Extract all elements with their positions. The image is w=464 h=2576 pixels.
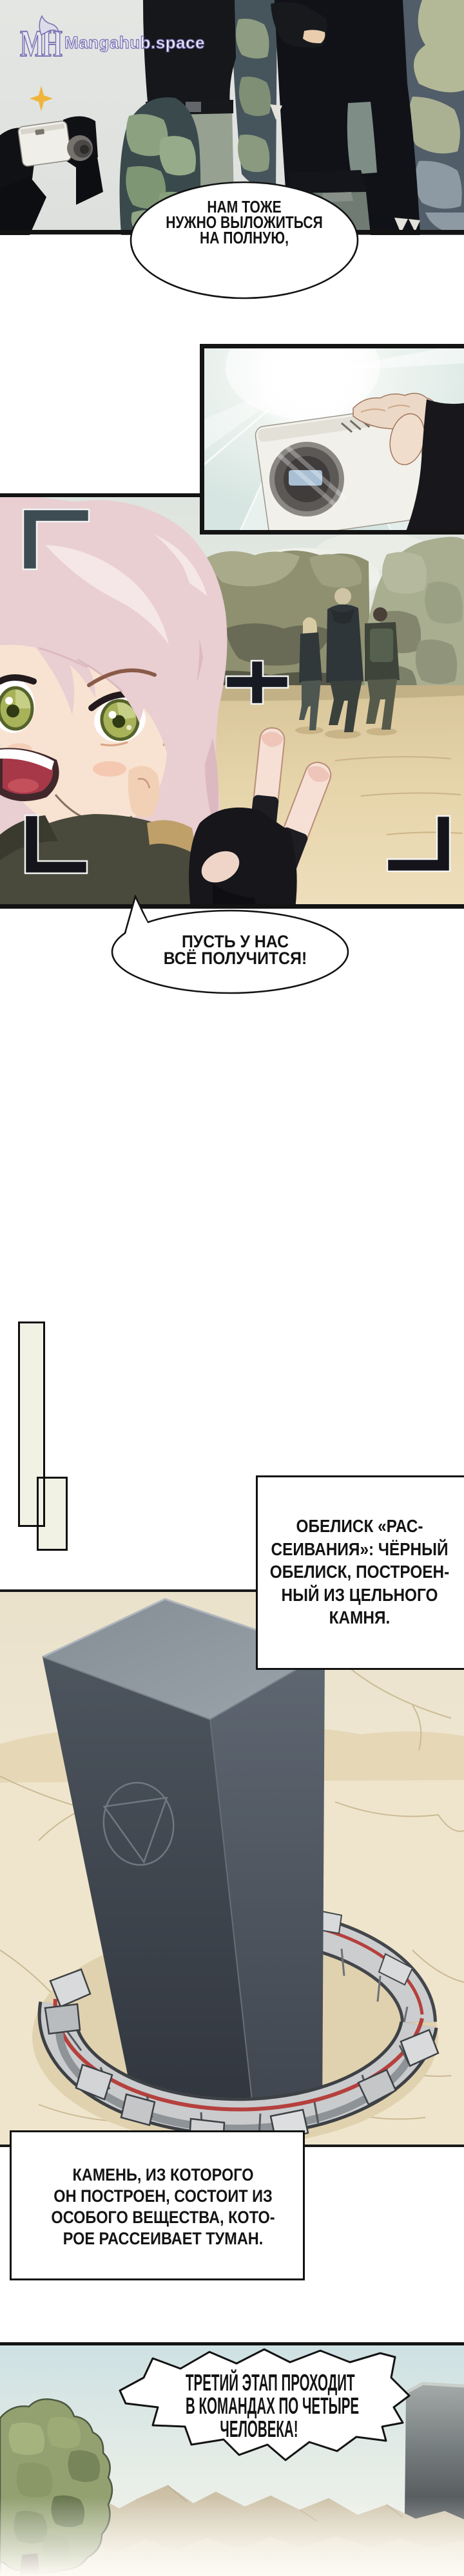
svg-text:Mangahub.space: Mangahub.space: [64, 33, 205, 52]
